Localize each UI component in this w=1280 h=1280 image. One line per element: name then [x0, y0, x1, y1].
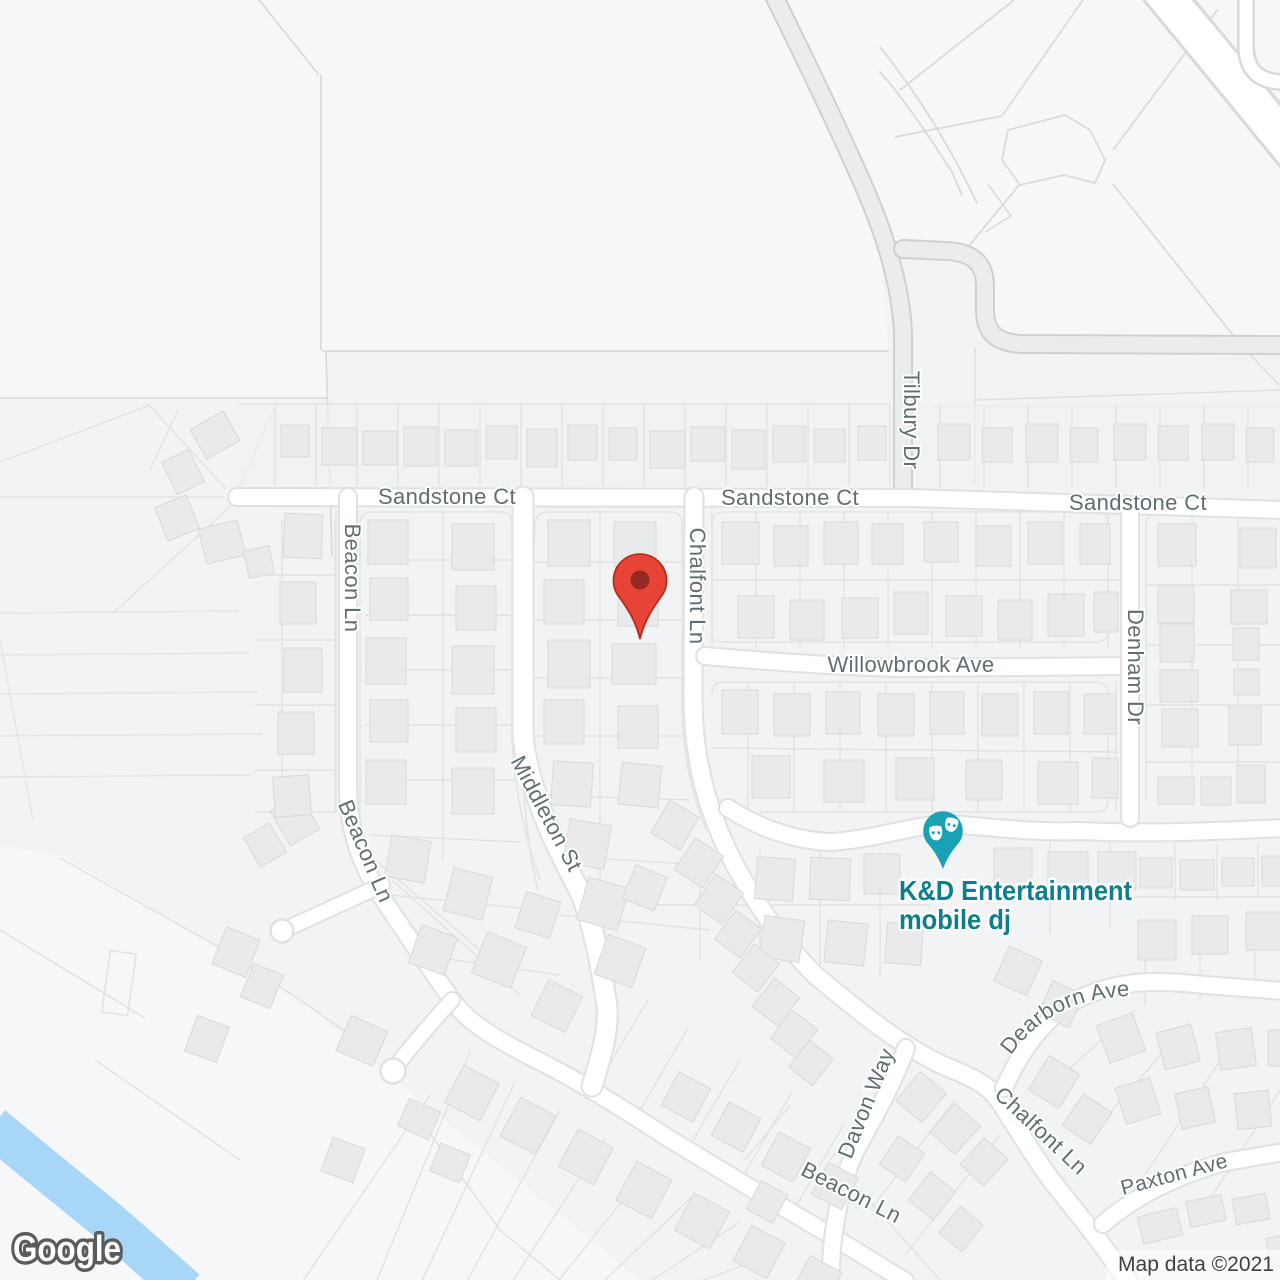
svg-text:mobile dj: mobile dj: [899, 904, 1011, 935]
svg-text:Beacon Ln: Beacon Ln: [340, 524, 365, 633]
svg-text:Map data ©2021: Map data ©2021: [1118, 1253, 1274, 1276]
svg-text:Google: Google: [13, 1228, 121, 1269]
svg-text:Willowbrook Ave: Willowbrook Ave: [828, 652, 995, 677]
svg-text:Sandstone Ct: Sandstone Ct: [721, 485, 859, 510]
svg-text:Denham Dr: Denham Dr: [1123, 609, 1148, 725]
svg-text:Tilbury Dr: Tilbury Dr: [899, 371, 924, 470]
svg-text:K&D Entertainment: K&D Entertainment: [899, 875, 1132, 906]
svg-text:Chalfont Ln: Chalfont Ln: [685, 528, 710, 645]
svg-text:Sandstone Ct: Sandstone Ct: [1069, 490, 1207, 515]
svg-text:Sandstone Ct: Sandstone Ct: [378, 484, 516, 509]
